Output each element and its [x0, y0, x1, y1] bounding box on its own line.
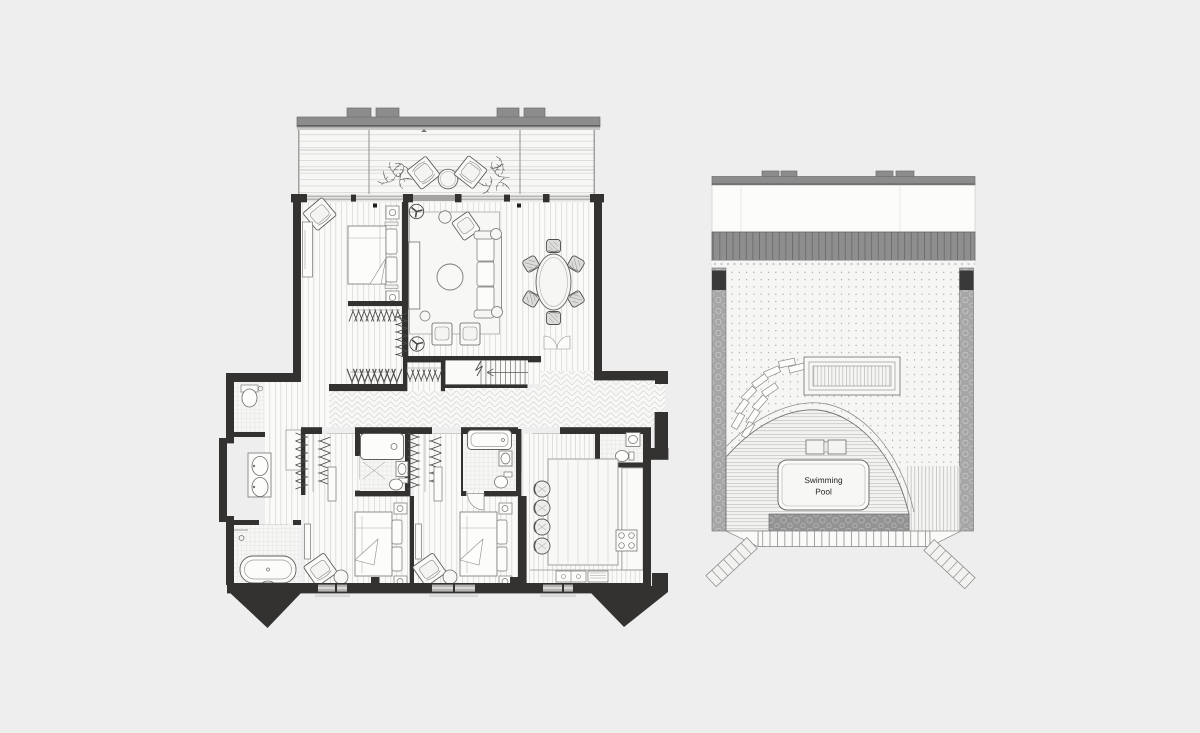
- svg-text:Swimming: Swimming: [804, 475, 843, 485]
- svg-text:Pool: Pool: [815, 486, 832, 496]
